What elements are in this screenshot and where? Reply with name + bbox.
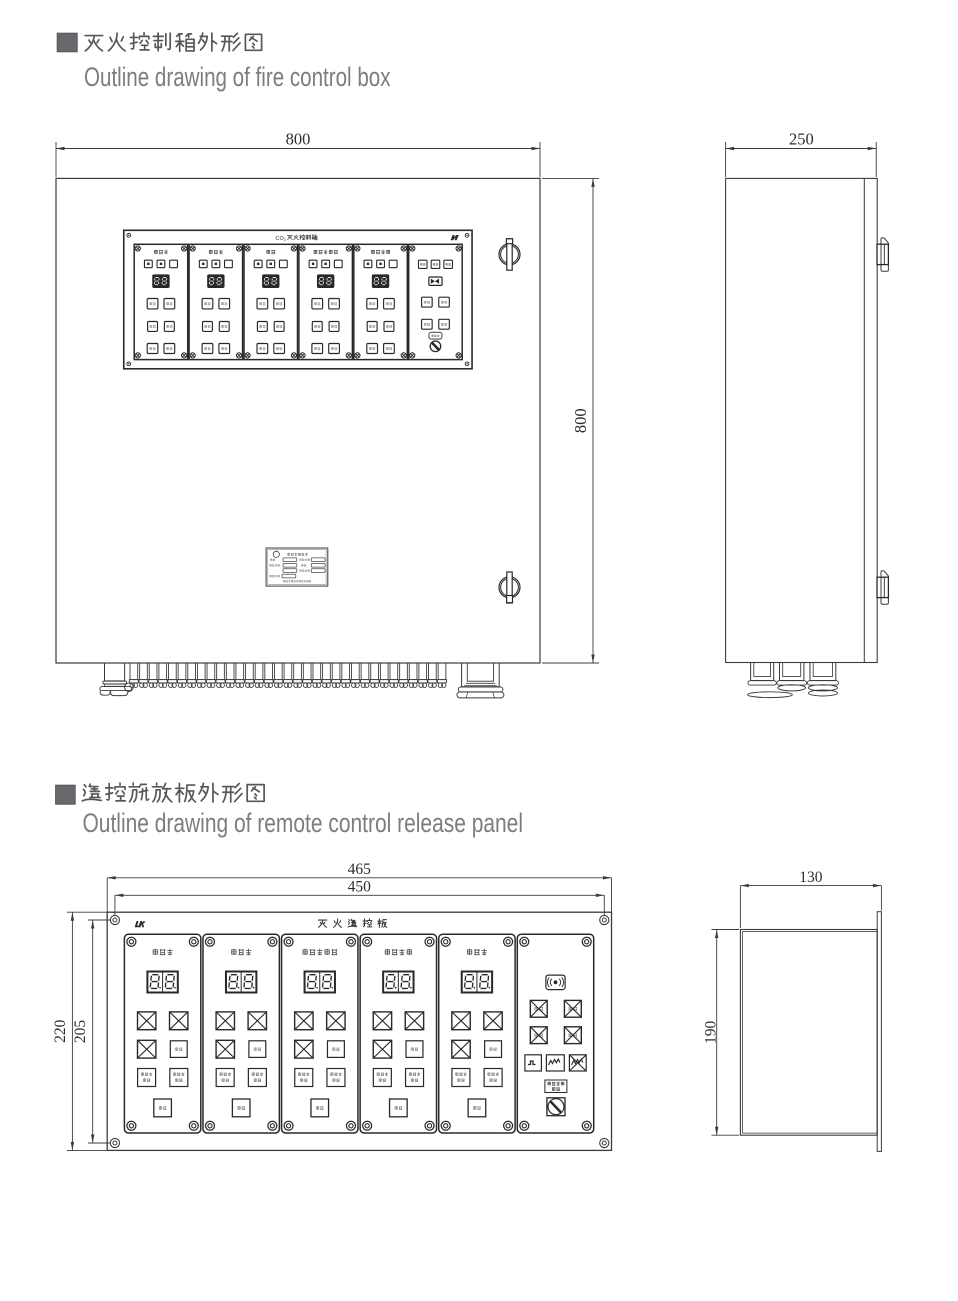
svg-text:205: 205 bbox=[72, 1020, 89, 1044]
svg-text:CO2: CO2 bbox=[275, 236, 285, 242]
svg-text:800: 800 bbox=[571, 408, 590, 433]
svg-text:465: 465 bbox=[348, 861, 372, 878]
svg-text:450: 450 bbox=[348, 879, 372, 896]
svg-text:220: 220 bbox=[52, 1019, 69, 1043]
svg-text:130: 130 bbox=[799, 869, 823, 886]
svg-text:190: 190 bbox=[702, 1021, 719, 1045]
svg-text:Outline drawing of remote cont: Outline drawing of remote control releas… bbox=[83, 808, 524, 838]
svg-text:800: 800 bbox=[286, 130, 311, 149]
svg-text:Outline drawing of fire contro: Outline drawing of fire control box bbox=[84, 62, 391, 92]
svg-text:250: 250 bbox=[789, 130, 814, 149]
